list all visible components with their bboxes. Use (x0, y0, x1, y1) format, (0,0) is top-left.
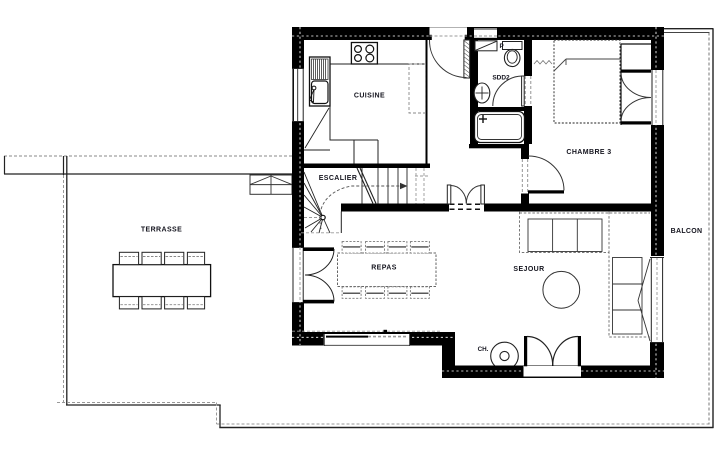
svg-text:CH.: CH. (478, 346, 489, 353)
svg-text:CUISINE: CUISINE (354, 93, 385, 100)
svg-text:SEJOUR: SEJOUR (513, 266, 544, 273)
svg-text:P: P (500, 43, 504, 50)
svg-text:ESCALIER: ESCALIER (319, 175, 358, 182)
svg-text:SDD2: SDD2 (492, 75, 510, 82)
svg-text:REPAS: REPAS (371, 265, 397, 272)
svg-text:TERRASSE: TERRASSE (141, 226, 182, 233)
svg-text:CHAMBRE 3: CHAMBRE 3 (566, 149, 611, 156)
svg-text:BALCON: BALCON (671, 228, 703, 235)
